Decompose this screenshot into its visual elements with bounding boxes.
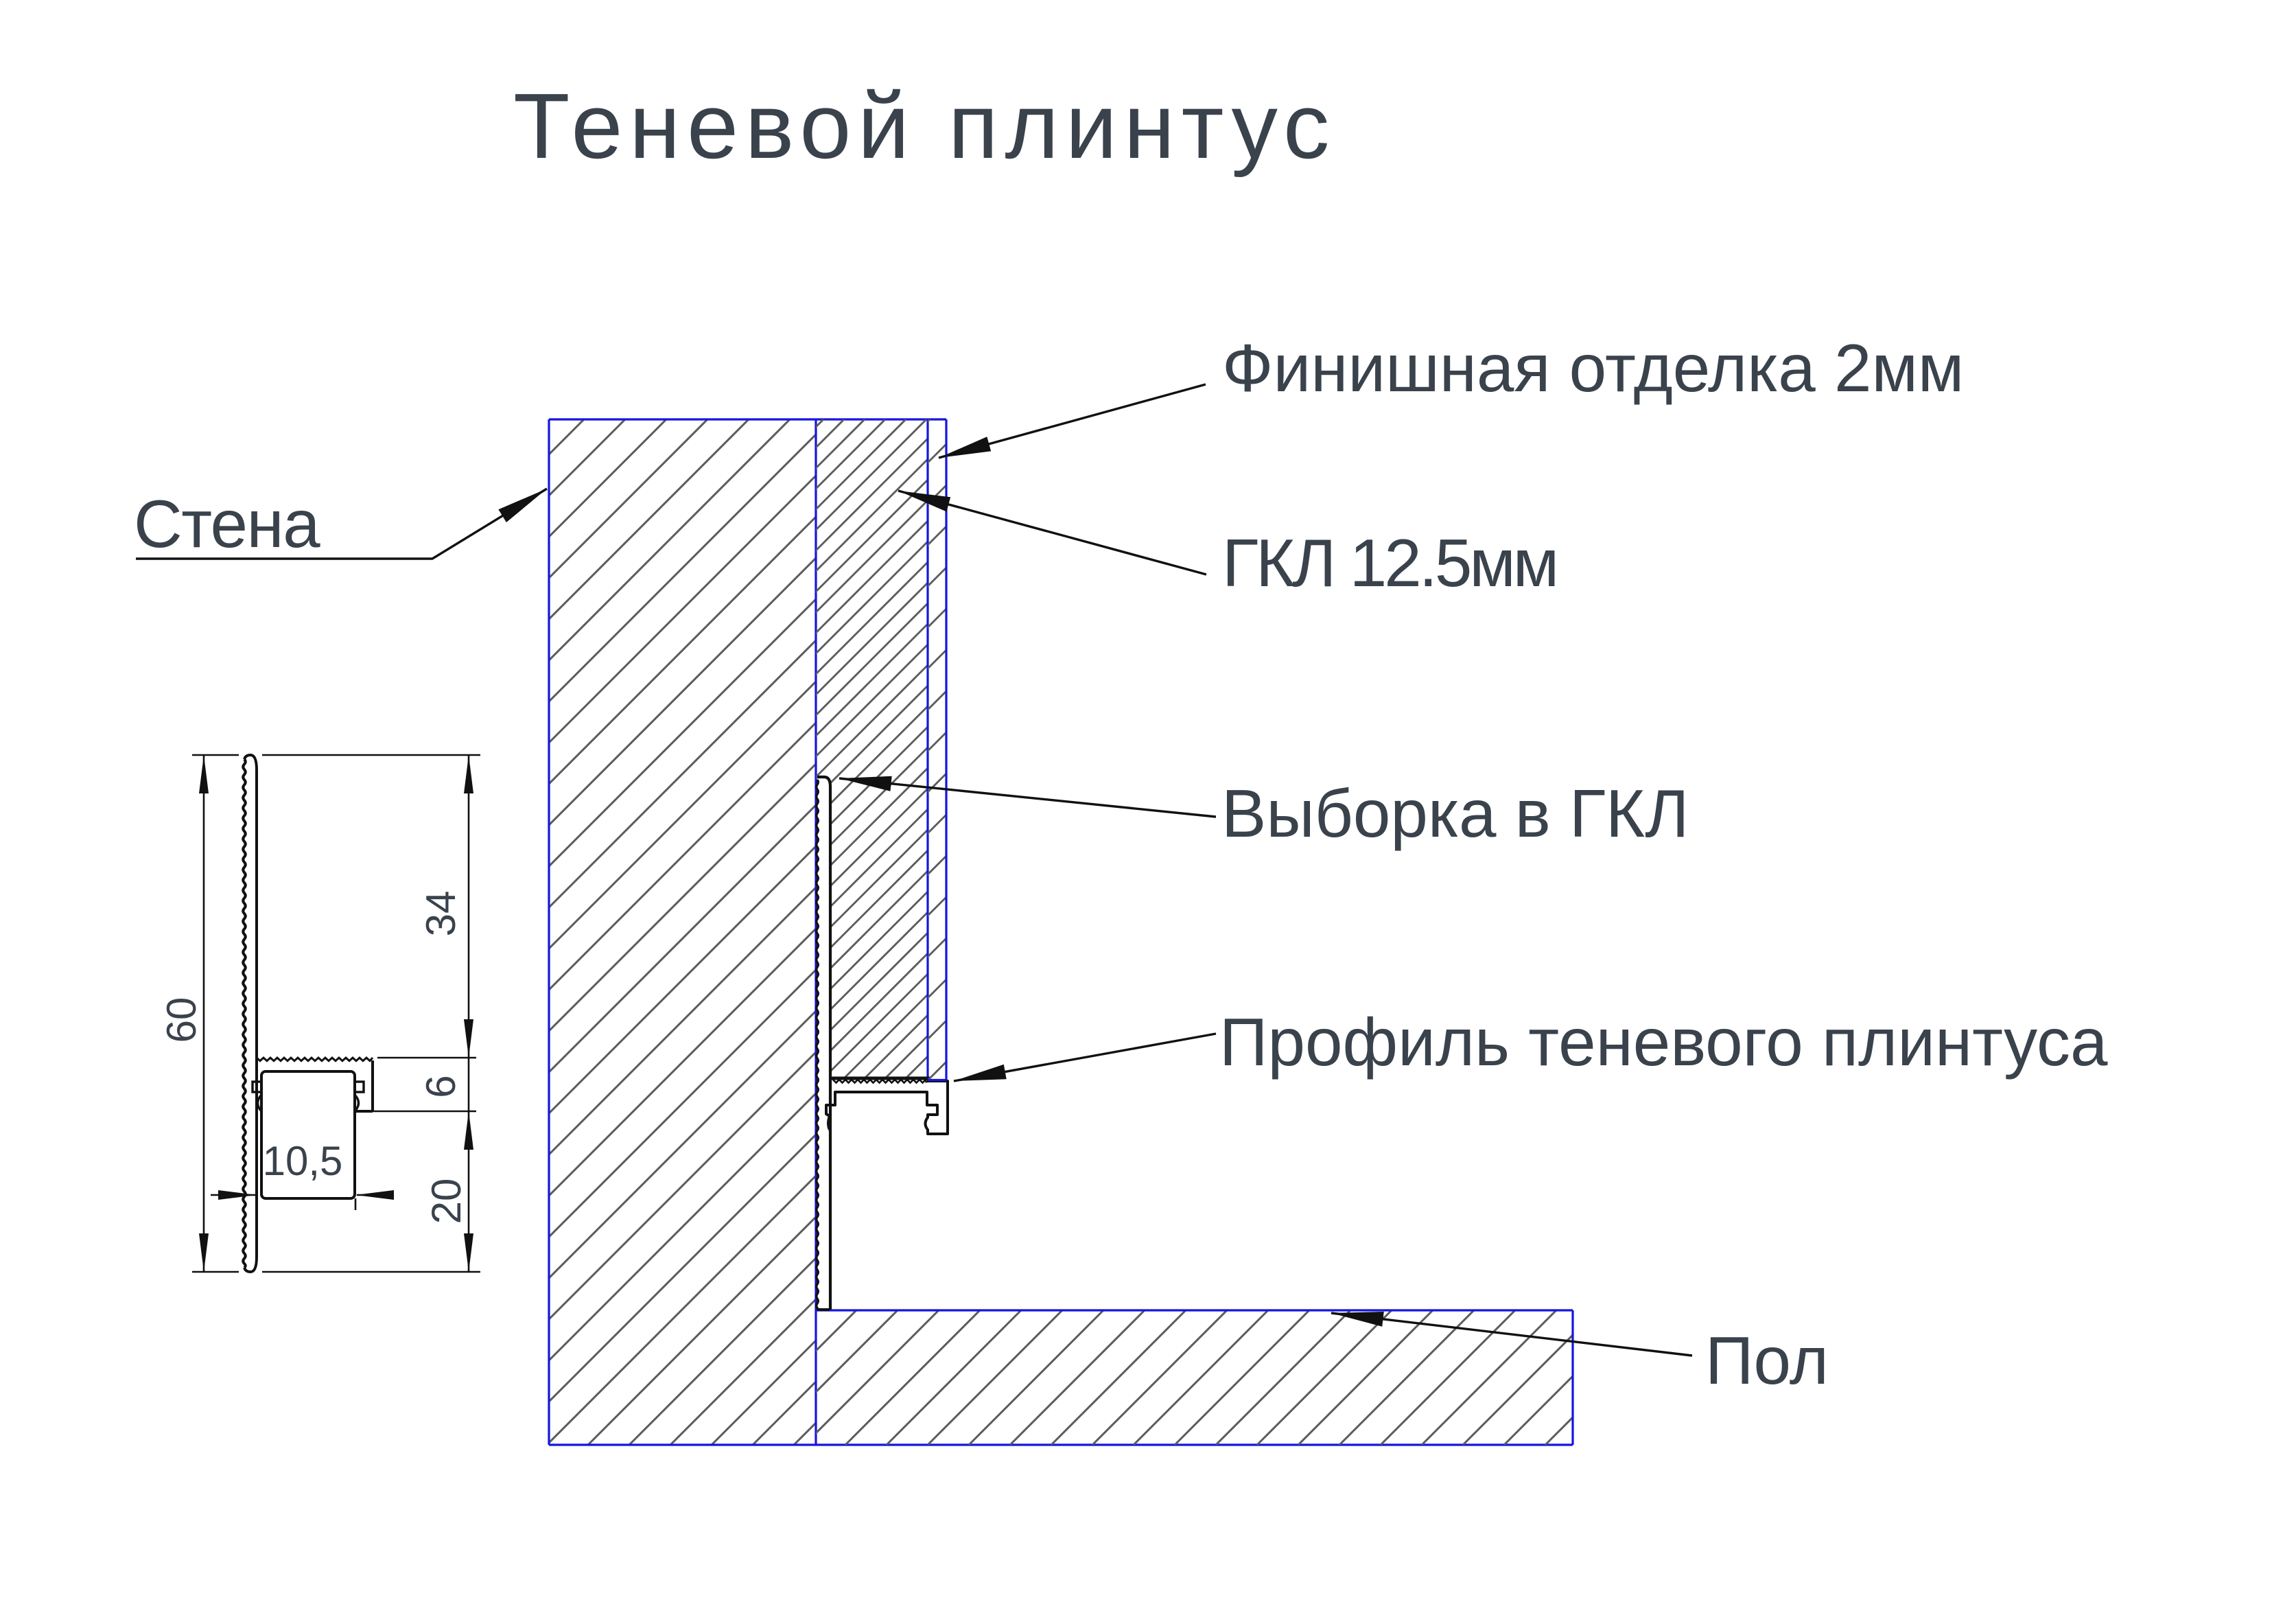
svg-text:10,5: 10,5	[263, 1138, 343, 1184]
svg-text:6: 6	[418, 1075, 464, 1098]
svg-text:Стена: Стена	[134, 486, 320, 561]
svg-text:60: 60	[159, 997, 204, 1043]
svg-text:34: 34	[418, 891, 464, 937]
svg-text:Пол: Пол	[1705, 1323, 1829, 1398]
svg-text:ГКЛ 12.5мм: ГКЛ 12.5мм	[1222, 525, 1556, 601]
svg-text:Финишная отделка 2мм: Финишная отделка 2мм	[1222, 330, 1964, 406]
svg-text:Выборка в ГКЛ: Выборка в ГКЛ	[1221, 776, 1689, 851]
svg-text:Профиль теневого плинтуса: Профиль теневого плинтуса	[1219, 1004, 2108, 1080]
svg-text:Теневой плинтус: Теневой плинтус	[513, 74, 1336, 178]
svg-text:20: 20	[423, 1179, 469, 1224]
